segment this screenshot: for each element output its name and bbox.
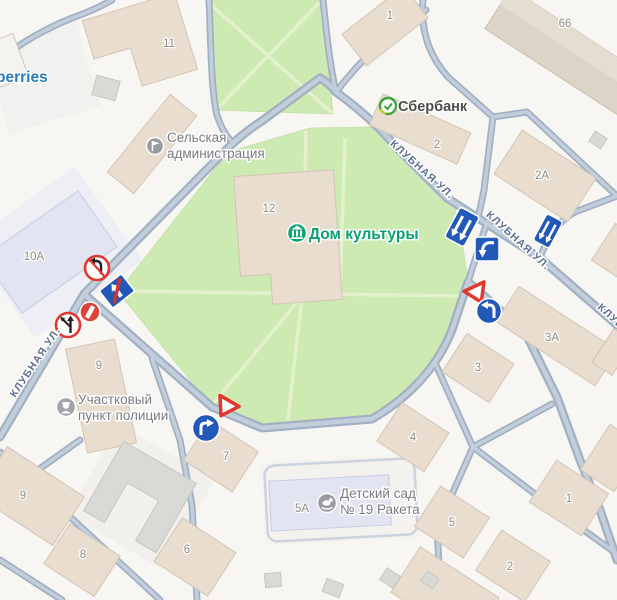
building-number: 5 xyxy=(449,517,455,529)
poi-admin-line2[interactable]: администрация xyxy=(167,146,265,161)
sberbank-check-icon[interactable] xyxy=(380,98,396,114)
poi-admin-line1[interactable]: Сельская xyxy=(167,130,227,145)
poi-kindergarten-line2[interactable]: № 19 Ракета xyxy=(340,502,420,517)
mandatory-turn-right-sign[interactable] xyxy=(193,415,220,442)
shed[interactable] xyxy=(264,572,281,587)
building-number: 3 xyxy=(475,362,481,374)
no-left-turn-sign[interactable] xyxy=(85,256,109,280)
building-number: 1 xyxy=(387,10,393,22)
poi-police-line1[interactable]: Участковый xyxy=(78,392,152,407)
building-number: 5А xyxy=(295,503,309,515)
poi-wildberries[interactable]: berries xyxy=(0,69,48,86)
poi-sberbank-label[interactable]: Сбербанк xyxy=(398,99,468,115)
police-officer-icon[interactable] xyxy=(57,398,76,417)
building-number: 10А xyxy=(24,251,45,263)
map-viewport[interactable]: КЛУБНАЯ УЛ. КЛУБНАЯ УЛ. КЛУБНАЯ УЛ. КЛУБ… xyxy=(0,0,617,600)
building-number: 6 xyxy=(184,544,190,556)
building-number: 2 xyxy=(507,561,513,573)
turn-direction-sign[interactable] xyxy=(475,237,499,261)
poi-kindergarten-line1[interactable]: Детский сад xyxy=(340,486,416,501)
building-number: 4 xyxy=(410,432,417,444)
building-number: 8 xyxy=(80,549,86,561)
building-number: 9 xyxy=(20,490,26,502)
building-number: 7 xyxy=(223,451,229,463)
poi-sberbank[interactable]: Сбербанк xyxy=(380,98,468,115)
building-number: 2А xyxy=(535,170,549,182)
building-number: 12 xyxy=(263,203,276,215)
map-canvas[interactable]: КЛУБНАЯ УЛ. КЛУБНАЯ УЛ. КЛУБНАЯ УЛ. КЛУБ… xyxy=(0,0,617,600)
poi-dom-kultury-label[interactable]: Дом культуры xyxy=(309,226,419,243)
building-number: 66 xyxy=(559,18,572,30)
flag-icon[interactable] xyxy=(147,138,164,155)
poi-police-line2[interactable]: пункт полиции xyxy=(78,408,168,423)
rocking-horse-icon[interactable] xyxy=(318,494,337,513)
culture-house-icon[interactable] xyxy=(288,224,307,243)
mandatory-turn-left-sign[interactable] xyxy=(477,299,502,324)
building-number: 2 xyxy=(434,139,440,151)
building-number: 1 xyxy=(566,493,572,505)
building-number: 9 xyxy=(96,360,102,372)
building-number: 3А xyxy=(545,332,559,344)
building-number: 11 xyxy=(163,38,175,50)
